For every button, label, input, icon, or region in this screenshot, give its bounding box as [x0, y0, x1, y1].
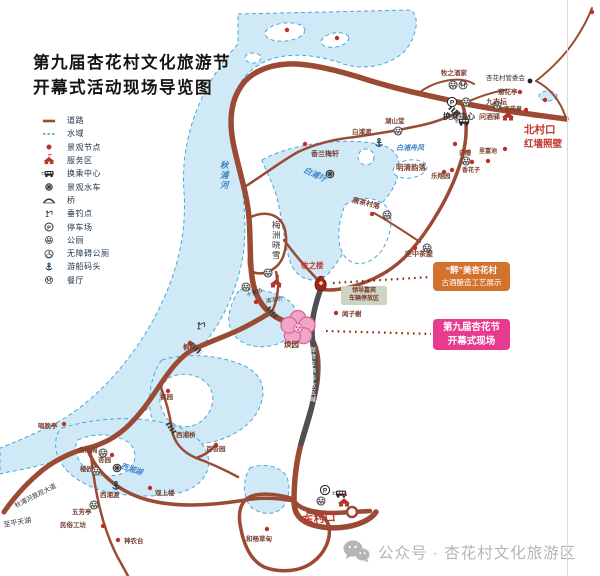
- legend-row: 餐厅: [38, 274, 110, 287]
- toilet-icon: [449, 81, 457, 89]
- map-label: 百杏园: [206, 444, 226, 453]
- toilet-icon: [90, 501, 98, 509]
- road-icon: [38, 114, 60, 128]
- toilet-icon: [38, 233, 60, 247]
- toilet-icon: [92, 467, 100, 475]
- legend-item-label: 景观水车: [67, 182, 101, 193]
- service-area-icon: [44, 154, 55, 164]
- map-label: 憩花亭: [498, 87, 518, 96]
- accessible-icon: [38, 247, 60, 261]
- map-label: 西湘渡: [100, 490, 120, 499]
- map-label: 枫园: [160, 392, 174, 401]
- map-label: 香兰梅轩: [310, 149, 339, 158]
- svg-text:P: P: [47, 225, 51, 231]
- map-label: 换乘中心: [443, 111, 475, 121]
- map-label: 保障车辆停放区域: [310, 346, 316, 404]
- toilet-icon: [99, 449, 107, 457]
- map-label: 梅洲晓雪: [272, 220, 281, 260]
- toilet-icon: [242, 283, 250, 291]
- callout-brewing-line-2: 古酒酿造工艺展示: [433, 277, 510, 289]
- map-label: 牧之楼: [301, 260, 324, 270]
- map-label: 西湘桥: [176, 430, 196, 439]
- svg-text:P: P: [450, 100, 455, 107]
- poi-dot: [370, 212, 374, 216]
- wechat-footer: 公众号 · 杏花村文化旅游区: [343, 540, 576, 563]
- map-label: 红墙照壁: [524, 138, 563, 150]
- map-label: 杏花村管委会: [486, 73, 526, 82]
- legend-row: 道路: [38, 114, 110, 127]
- legend-row: 服务区: [38, 154, 110, 167]
- poi-dot: [518, 90, 522, 94]
- poi-dot: [148, 486, 152, 490]
- legend-item-label: 游船码头: [67, 261, 101, 272]
- map-label: 北村口: [524, 123, 556, 136]
- restaurant-icon: [38, 273, 60, 287]
- toilet-icon: [46, 237, 53, 244]
- map-canvas: PP 牧之酒家杏花村管委会憩花亭九吉坛杏花泉换乘中心问酒驿北村口红墙照壁湖山堂白…: [0, 0, 600, 576]
- map-label: 和畅草甸: [245, 534, 273, 543]
- poi-dot: [101, 524, 105, 528]
- map-label: 会仙阁: [78, 445, 98, 454]
- toilet-icon: [462, 157, 470, 165]
- pond-east: [244, 465, 288, 513]
- map-label: 观上楼: [155, 488, 175, 497]
- map-label: 白浦渡: [352, 127, 372, 136]
- callout-opening-line-1: 第九届杏花节: [433, 321, 510, 335]
- map-label: 问酒驿: [479, 112, 501, 121]
- map-label: 湖山堂: [385, 116, 405, 125]
- legend-row: 垂钓点: [38, 207, 110, 220]
- poi-dot: [303, 142, 307, 146]
- legend-item-label: 餐厅: [67, 275, 84, 286]
- legend-item-label: 公厕: [67, 235, 84, 246]
- map-label: 民俗工坊: [60, 520, 87, 529]
- map-label: 唱晚亭: [38, 421, 58, 430]
- legend-row: 公厕: [38, 234, 110, 247]
- legend-row: 景观水车: [38, 180, 110, 193]
- service-area-icon: [270, 275, 282, 287]
- service-area-icon: [338, 494, 350, 506]
- waterwheel-icon: [46, 184, 53, 191]
- vip-parking-box: 领导嘉宾 车辆停放区: [341, 286, 387, 305]
- poi-dot: [453, 142, 457, 146]
- toilet-icon: [462, 98, 470, 106]
- legend-item-label: 垂钓点: [67, 208, 93, 219]
- map-label: 香花子: [461, 166, 480, 174]
- leader-brewing: [333, 277, 431, 283]
- vip-box-line-2: 车辆停放区: [342, 296, 386, 304]
- dock-anchor-icon: [46, 263, 52, 270]
- entrance-circle: [347, 507, 357, 517]
- restaurant-icon: [46, 277, 53, 284]
- title-line-1: 第九届杏花村文化旅游节: [33, 50, 231, 75]
- map-label: 九吉坛: [485, 97, 507, 106]
- legend-row: P停车场: [38, 220, 110, 233]
- wechat-account-text: 公众号 · 杏花村文化旅游区: [378, 541, 576, 563]
- map-label: 神农台: [124, 536, 144, 545]
- dock-anchor-icon: [376, 139, 383, 147]
- map-label: 杏花泉: [503, 105, 523, 113]
- map-label: 乐翔园: [431, 171, 451, 180]
- legend-row: 桥: [38, 194, 110, 207]
- parking-icon: P: [38, 220, 60, 234]
- callout-brewing-line-1: “醉”美杏花村: [433, 264, 510, 277]
- bridge-icon: [43, 200, 55, 204]
- map-label: 白浦舟风: [396, 143, 425, 152]
- toilet-icon: [383, 211, 391, 219]
- poi-dot: [486, 159, 490, 163]
- restaurant-icon: [459, 81, 467, 89]
- legend-item-label: 景观节点: [67, 142, 101, 153]
- map-label: 焕园: [284, 339, 299, 349]
- legend-item-label: 服务区: [67, 155, 93, 166]
- poi-dot: [503, 147, 507, 151]
- map-label: 枫桥: [183, 342, 197, 351]
- legend-row: 换乘中心: [38, 167, 110, 180]
- accessible-toilet-icon: [45, 250, 53, 258]
- legend-row: 水域: [38, 127, 110, 140]
- parking-icon: P: [447, 97, 456, 106]
- node-icon: [38, 140, 60, 154]
- toilet-icon: [264, 269, 272, 277]
- map-label: 空中茶屋: [405, 249, 433, 258]
- poi-dot: [265, 527, 269, 531]
- toilet-icon: [394, 127, 402, 135]
- legend-item-label: 无障碍公厕: [67, 248, 110, 259]
- toilet-icon: [317, 497, 325, 505]
- svg-text:P: P: [323, 488, 328, 495]
- office-dot: [528, 79, 533, 84]
- leader-opening: [326, 331, 431, 334]
- poi-dot: [470, 160, 474, 164]
- poi-dot: [335, 36, 339, 40]
- vip-box-line-1: 领导嘉宾: [342, 288, 386, 296]
- poi-dot: [62, 422, 66, 426]
- poi-dot: [450, 168, 454, 172]
- legend: 道路水域景观节点服务区换乘中心景观水车桥垂钓点P停车场公厕无障碍公厕游船码头餐厅: [38, 114, 110, 287]
- map-label: 明清韵落: [396, 162, 426, 172]
- map-label: 至平天湖: [3, 515, 32, 529]
- legend-item-label: 道路: [67, 115, 84, 126]
- callout-opening: 第九届杏花节 开幕式现场: [433, 319, 510, 350]
- service-icon: [38, 154, 60, 168]
- node-icon: [47, 145, 52, 150]
- transfer-icon: [38, 167, 60, 181]
- poi-dot: [254, 300, 258, 304]
- legend-item-label: 桥: [67, 195, 76, 206]
- map-label: 五芳亭: [72, 507, 92, 516]
- map-label: 杏园: [97, 455, 112, 464]
- page-divider: [567, 0, 568, 576]
- waterwheel-icon: [326, 170, 334, 178]
- parking-icon: P: [45, 223, 53, 231]
- poi-dot: [334, 311, 338, 315]
- poi-dot: [166, 389, 170, 393]
- dock-icon: [38, 260, 60, 274]
- poi-dot: [543, 98, 547, 102]
- transfer-bus-icon: [42, 171, 54, 177]
- bridge-icon: [38, 193, 60, 207]
- legend-row: 游船码头: [38, 260, 110, 273]
- poi-dot: [285, 28, 289, 32]
- legend-item-label: 换乘中心: [67, 168, 101, 179]
- map-label: 里富池: [479, 147, 497, 155]
- callout-brewing: “醉”美杏花村 古酒酿造工艺展示: [433, 262, 510, 291]
- legend-item-label: 停车场: [67, 222, 93, 233]
- legend-item-label: 水域: [67, 128, 84, 139]
- parking-icon: P: [320, 485, 329, 494]
- map-label: 白醴: [459, 149, 471, 157]
- fishing-point-icon: [46, 210, 52, 216]
- poi-dot: [590, 10, 594, 14]
- map-label: 牧之酒家: [441, 68, 468, 77]
- poi-dot: [524, 108, 528, 112]
- poi-dot: [413, 246, 417, 250]
- water-icon: [38, 127, 60, 141]
- waterwheel-icon: [38, 180, 60, 194]
- meizhou-loop: [249, 214, 286, 274]
- callout-opening-line-2: 开幕式现场: [433, 335, 510, 349]
- north-spur-2: [536, 8, 592, 81]
- map-label: 楼园: [80, 464, 94, 473]
- poi-dot: [116, 538, 120, 542]
- map-label: 闻子榭: [342, 309, 362, 318]
- page-title: 第九届杏花村文化旅游节 开幕式活动现场导览图: [33, 50, 231, 100]
- legend-row: 景观节点: [38, 141, 110, 154]
- legend-row: 无障碍公厕: [38, 247, 110, 260]
- fishing-icon: [38, 207, 60, 221]
- wechat-icon: [343, 540, 370, 563]
- title-line-2: 开幕式活动现场导览图: [33, 75, 231, 100]
